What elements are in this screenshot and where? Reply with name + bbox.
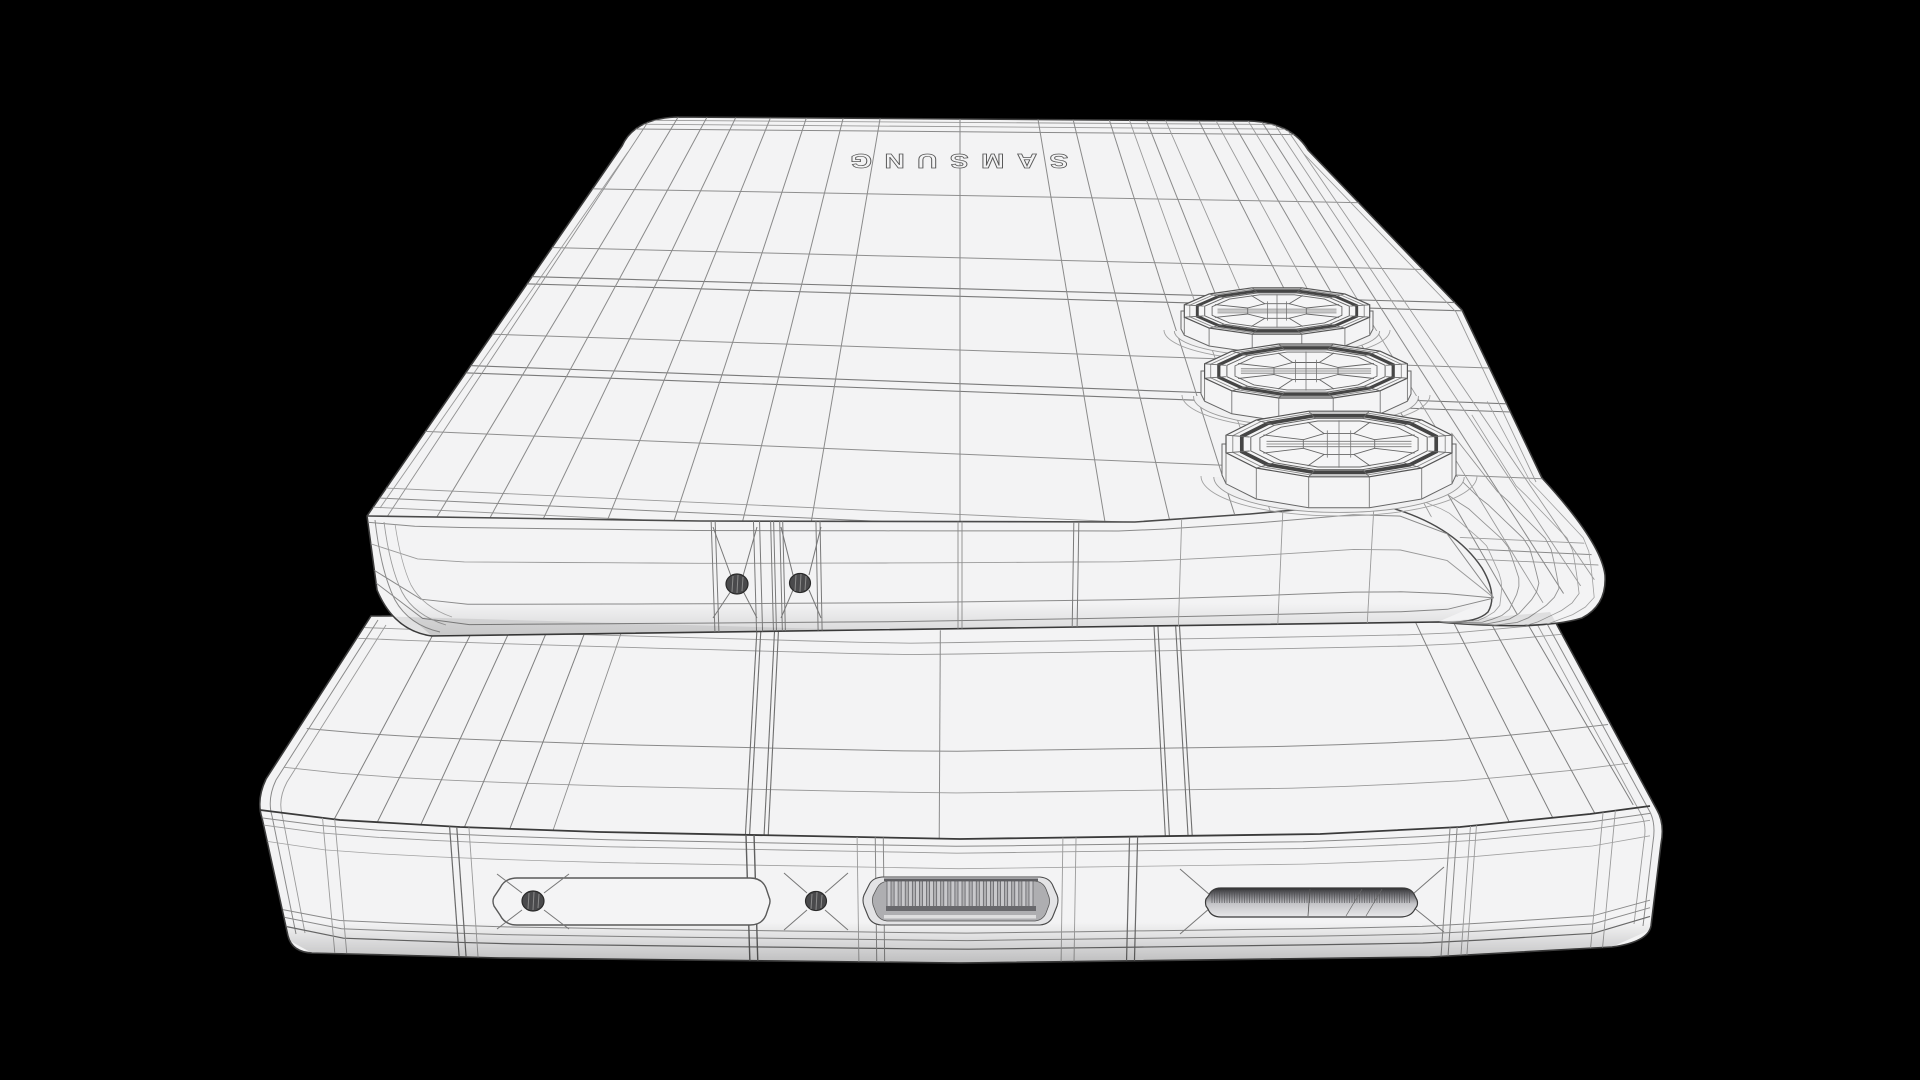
- svg-text:SAMSUNG: SAMSUNG: [838, 149, 1069, 171]
